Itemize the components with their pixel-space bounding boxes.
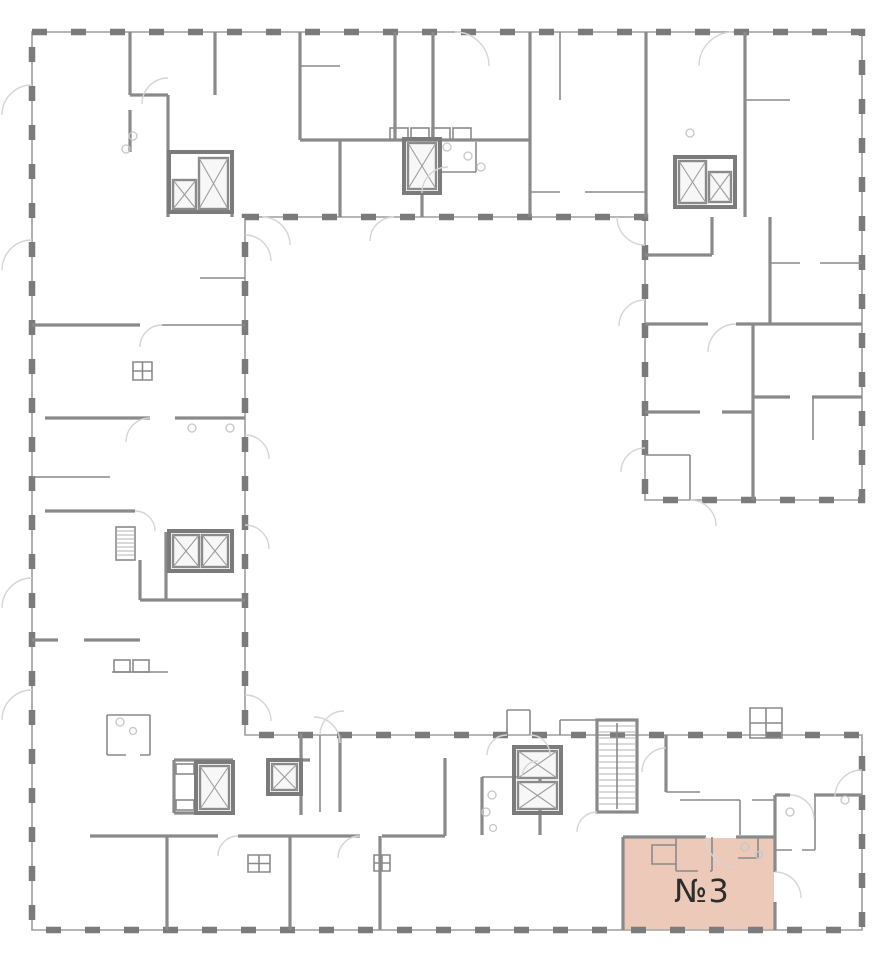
elevator-core-bottom-middle xyxy=(514,747,561,813)
elevator-core-top-left xyxy=(169,152,232,212)
elevator-core-bottom-left xyxy=(196,760,301,813)
counter-boxes xyxy=(114,128,471,810)
elevator-core-top-middle xyxy=(404,139,440,193)
room-partition-walls xyxy=(32,32,862,871)
staircase-bottom-icon xyxy=(597,720,637,812)
column-grid-icon xyxy=(133,362,782,872)
floor-plan-canvas: №3 xyxy=(0,0,894,960)
elevator-core-left-middle xyxy=(169,531,232,571)
interior-walls-light xyxy=(32,32,862,872)
elevator-core-top-right xyxy=(675,157,735,207)
plumbing-fixtures xyxy=(116,129,849,859)
staircase-left-icon xyxy=(116,527,135,560)
unit-3-label: №3 xyxy=(674,872,730,910)
floor-plan-page: №3 xyxy=(0,0,894,960)
door-arc-icon xyxy=(2,85,32,115)
